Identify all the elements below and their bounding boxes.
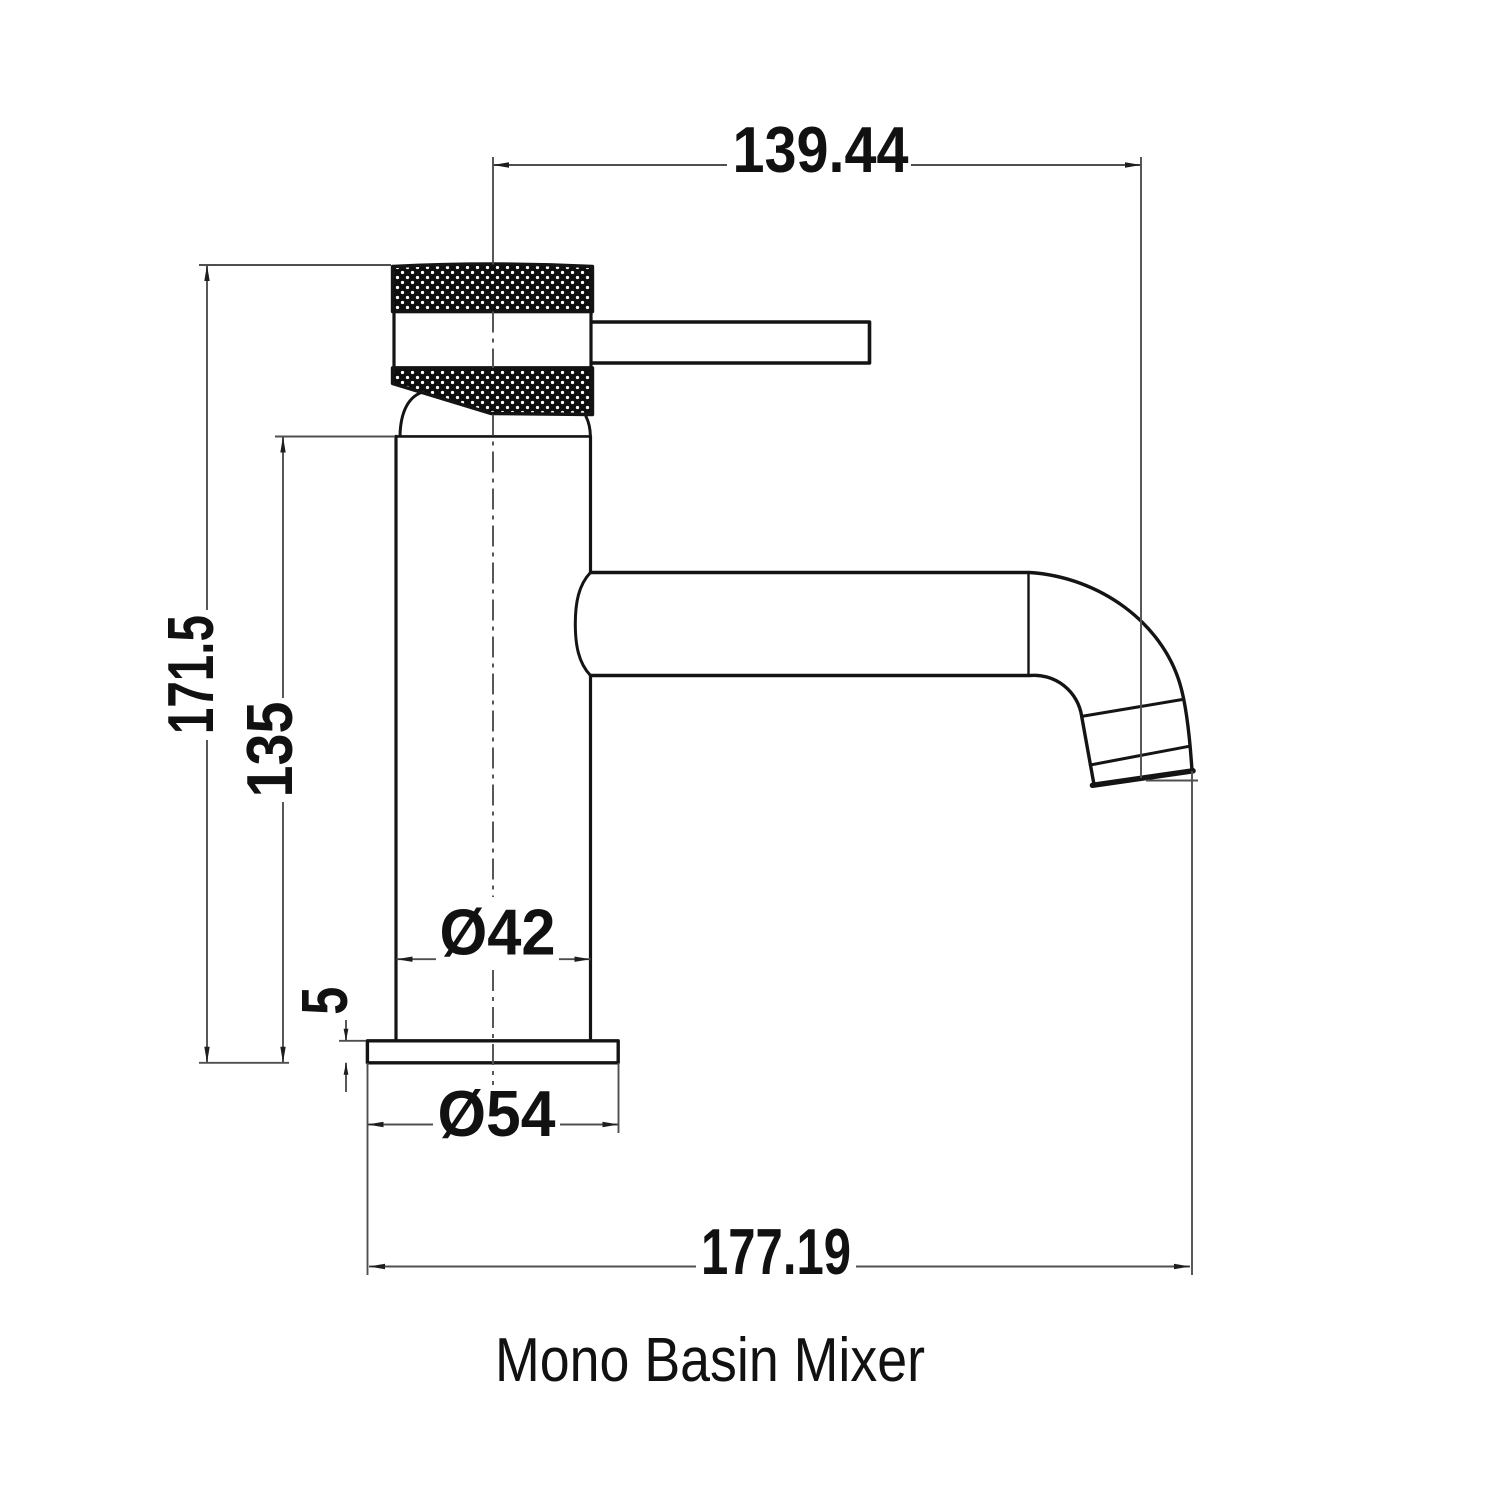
svg-text:177.19: 177.19 [701,1215,851,1288]
svg-text:Ø42: Ø42 [440,896,556,969]
svg-text:Ø54: Ø54 [438,1077,556,1150]
svg-text:171.5: 171.5 [154,615,227,734]
svg-text:139.44: 139.44 [733,113,909,186]
svg-text:135: 135 [233,702,306,798]
svg-text:5: 5 [288,987,361,1015]
svg-text:Mono Basin Mixer: Mono Basin Mixer [495,1326,925,1395]
